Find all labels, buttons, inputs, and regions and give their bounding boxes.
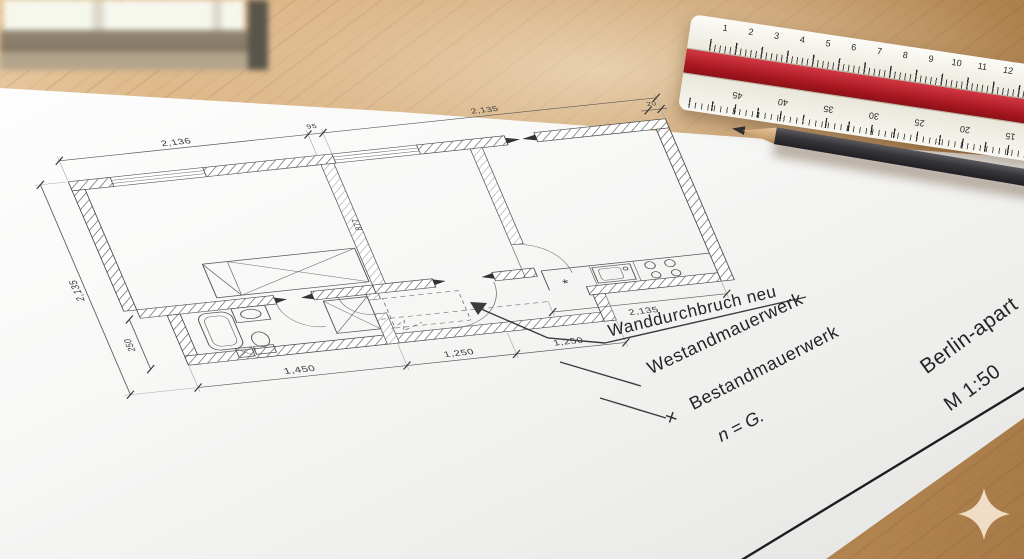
leader-arrowhead — [470, 302, 487, 315]
sparkle-icon — [958, 488, 1010, 540]
pencil-lead-tip — [731, 124, 745, 135]
strike-symbol: ✕ — [662, 408, 681, 429]
photo-floorplan-on-desk: { "photo": { "plan": { "dimensions": { "… — [0, 0, 1024, 559]
